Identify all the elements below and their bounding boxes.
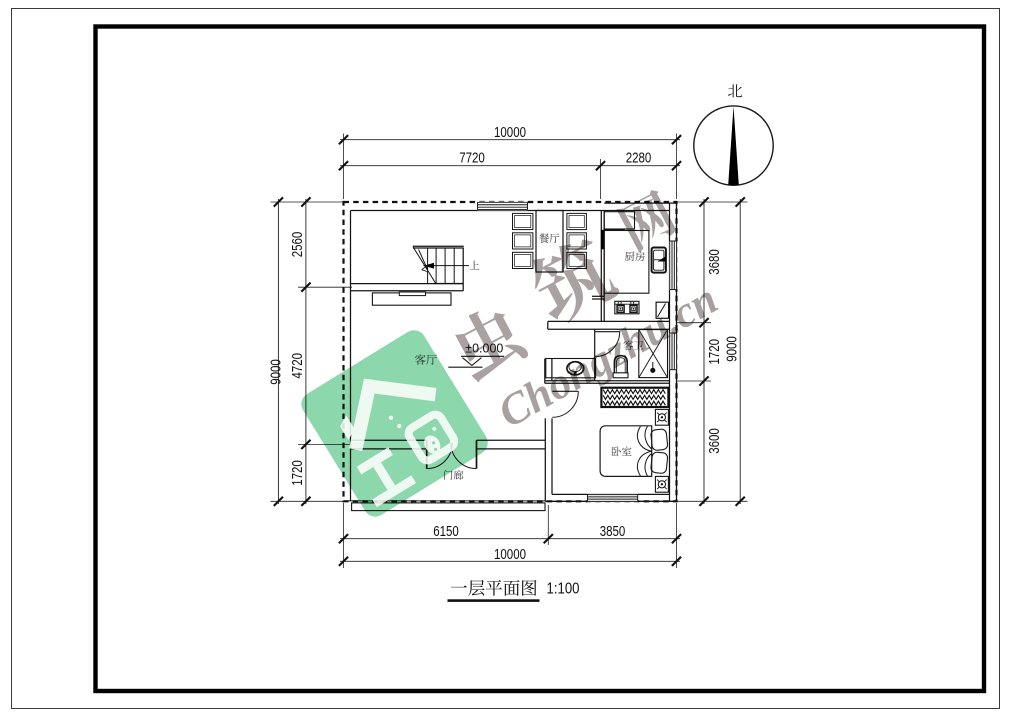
svg-text:10000: 10000 (494, 546, 526, 563)
svg-text:3680: 3680 (706, 249, 723, 275)
svg-text:3600: 3600 (706, 428, 723, 454)
svg-text:7720: 7720 (459, 150, 485, 167)
svg-text:9000: 9000 (268, 359, 285, 385)
svg-text:2560: 2560 (289, 232, 306, 258)
svg-text:10000: 10000 (494, 124, 526, 141)
svg-text:3850: 3850 (600, 523, 626, 540)
svg-text:9000: 9000 (724, 336, 741, 362)
svg-text:1720: 1720 (706, 339, 723, 365)
svg-text:4720: 4720 (289, 353, 306, 379)
svg-text:6150: 6150 (433, 523, 459, 540)
svg-text:2280: 2280 (626, 150, 652, 167)
svg-text:1:100: 1:100 (547, 581, 580, 598)
svg-text:1720: 1720 (289, 460, 306, 486)
